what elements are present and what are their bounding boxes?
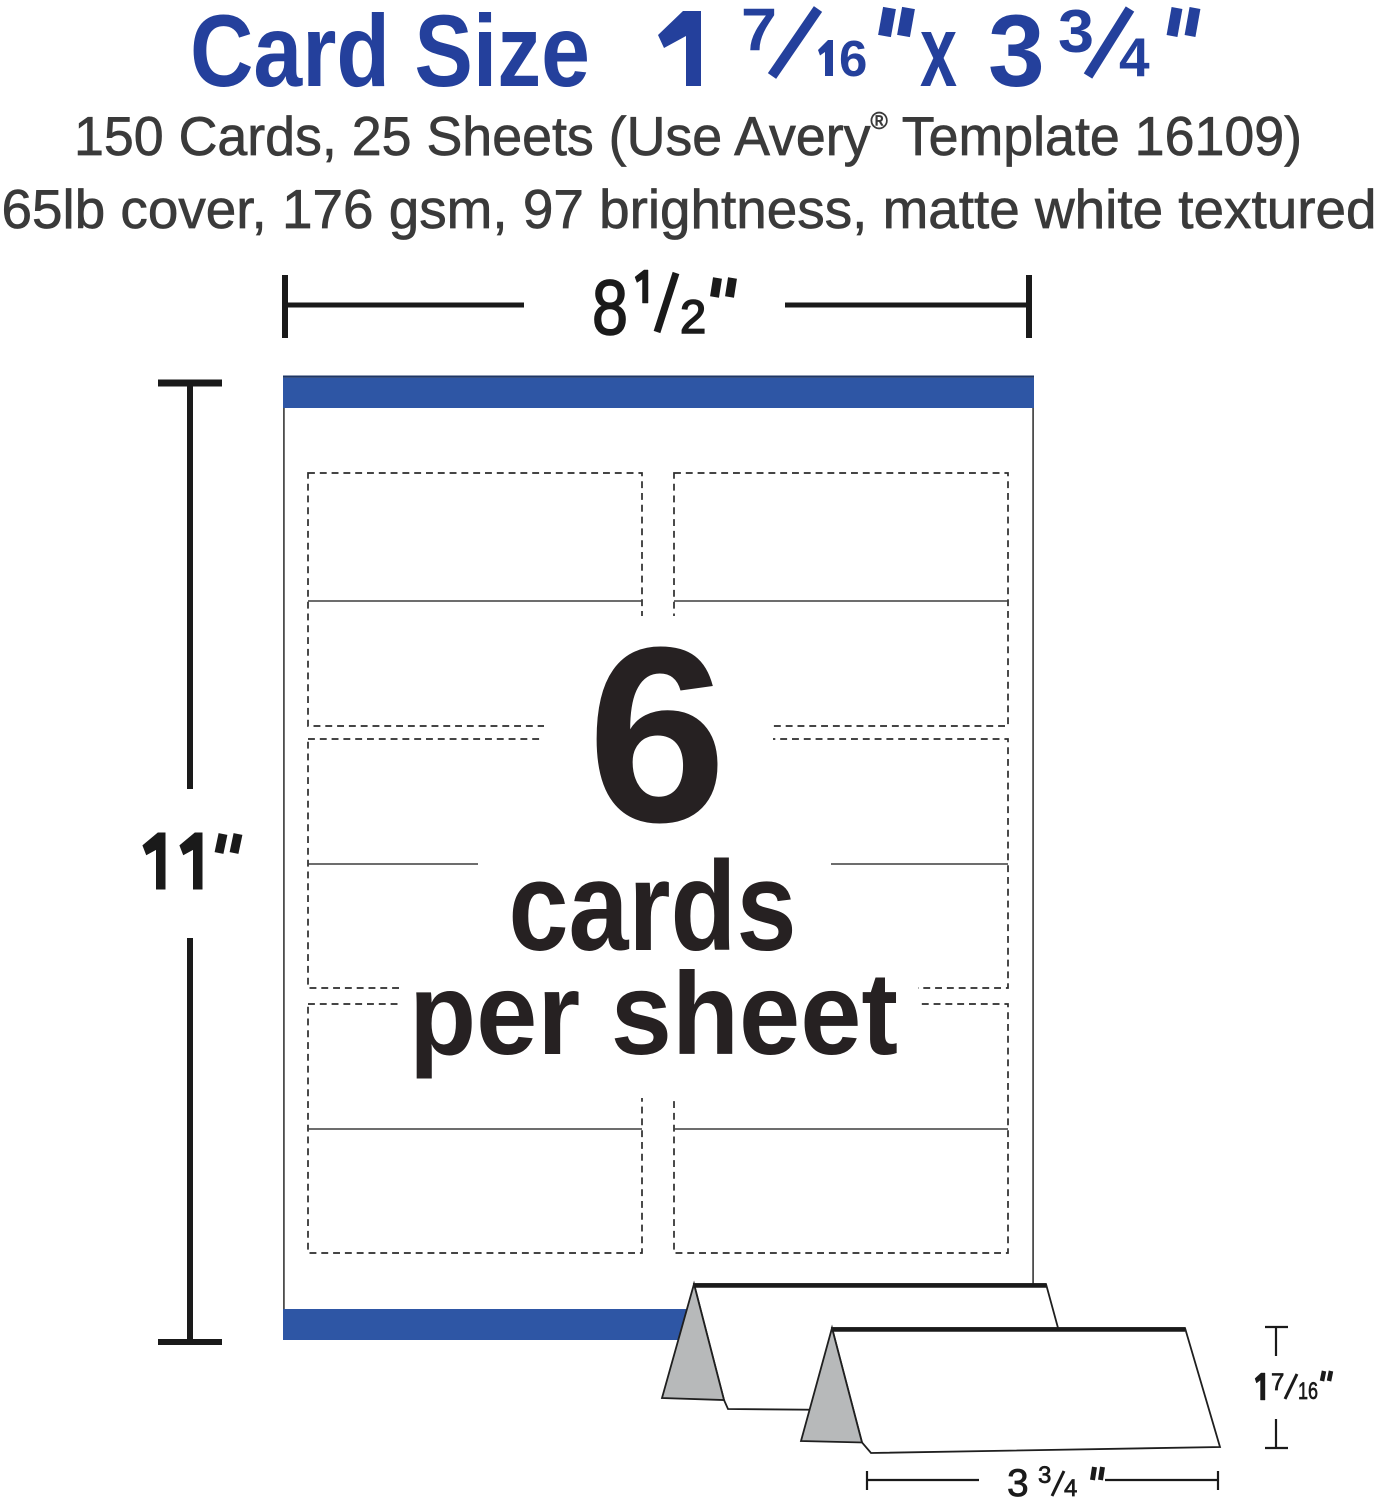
- svg-text:65lb cover, 176 gsm, 97 bright: 65lb cover, 176 gsm, 97 brightness, matt…: [2, 178, 1377, 240]
- svg-text:4: 4: [1119, 26, 1150, 88]
- svg-text:8: 8: [592, 263, 628, 351]
- svg-text:per sheet: per sheet: [409, 948, 898, 1079]
- svg-text:x: x: [920, 0, 957, 108]
- svg-text:3: 3: [1058, 0, 1094, 65]
- svg-text:4: 4: [1064, 1475, 1077, 1500]
- svg-text:3: 3: [1007, 1462, 1029, 1500]
- svg-text:6: 6: [839, 30, 867, 87]
- svg-text:16: 16: [1298, 1378, 1318, 1405]
- svg-text:3: 3: [988, 0, 1045, 108]
- svg-text:7: 7: [741, 0, 777, 63]
- svg-text:7: 7: [1271, 1369, 1284, 1396]
- svg-text:6: 6: [587, 595, 726, 874]
- svg-text:Card Size: Card Size: [190, 0, 590, 108]
- svg-text:3: 3: [1038, 1462, 1051, 1489]
- svg-text:150 Cards, 25 Sheets (Use Aver: 150 Cards, 25 Sheets (Use Avery® Templat…: [74, 105, 1302, 167]
- svg-text:2: 2: [680, 290, 706, 343]
